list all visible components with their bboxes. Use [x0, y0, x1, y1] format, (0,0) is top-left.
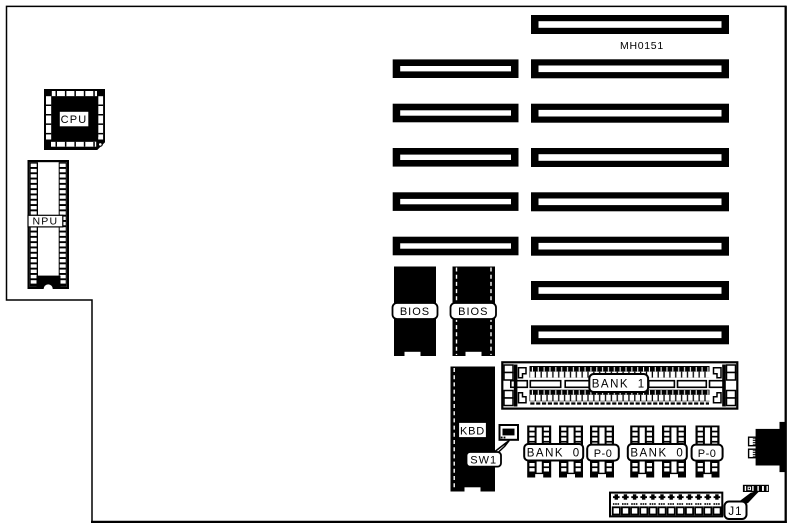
svg-text:BANK 0: BANK 0 — [630, 448, 684, 460]
svg-text:CPU: CPU — [61, 114, 88, 126]
svg-text:P-0: P-0 — [594, 448, 613, 460]
svg-text:P-0: P-0 — [698, 448, 717, 460]
svg-text:BIOS: BIOS — [400, 306, 430, 318]
svg-text:MH0151: MH0151 — [620, 40, 664, 52]
svg-text:SW1: SW1 — [470, 454, 497, 466]
svg-text:J1: J1 — [728, 506, 742, 518]
svg-text:KBD: KBD — [460, 425, 485, 437]
svg-text:BANK 1: BANK 1 — [592, 378, 646, 390]
svg-text:BIOS: BIOS — [458, 306, 488, 318]
svg-text:NPU: NPU — [33, 216, 59, 228]
svg-text:BANK 0: BANK 0 — [527, 448, 581, 460]
